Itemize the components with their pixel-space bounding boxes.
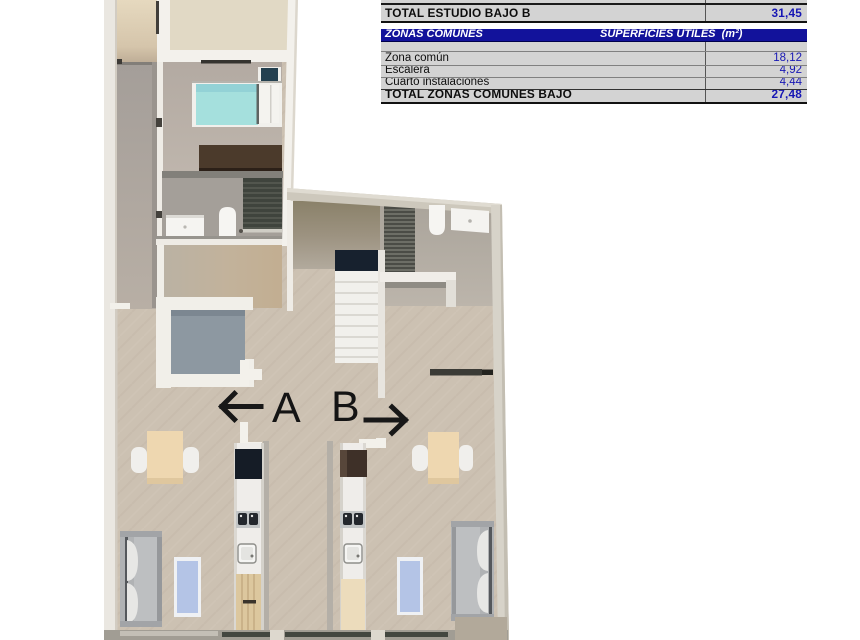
svg-text:B: B	[331, 383, 360, 431]
svg-text:A: A	[272, 384, 301, 432]
